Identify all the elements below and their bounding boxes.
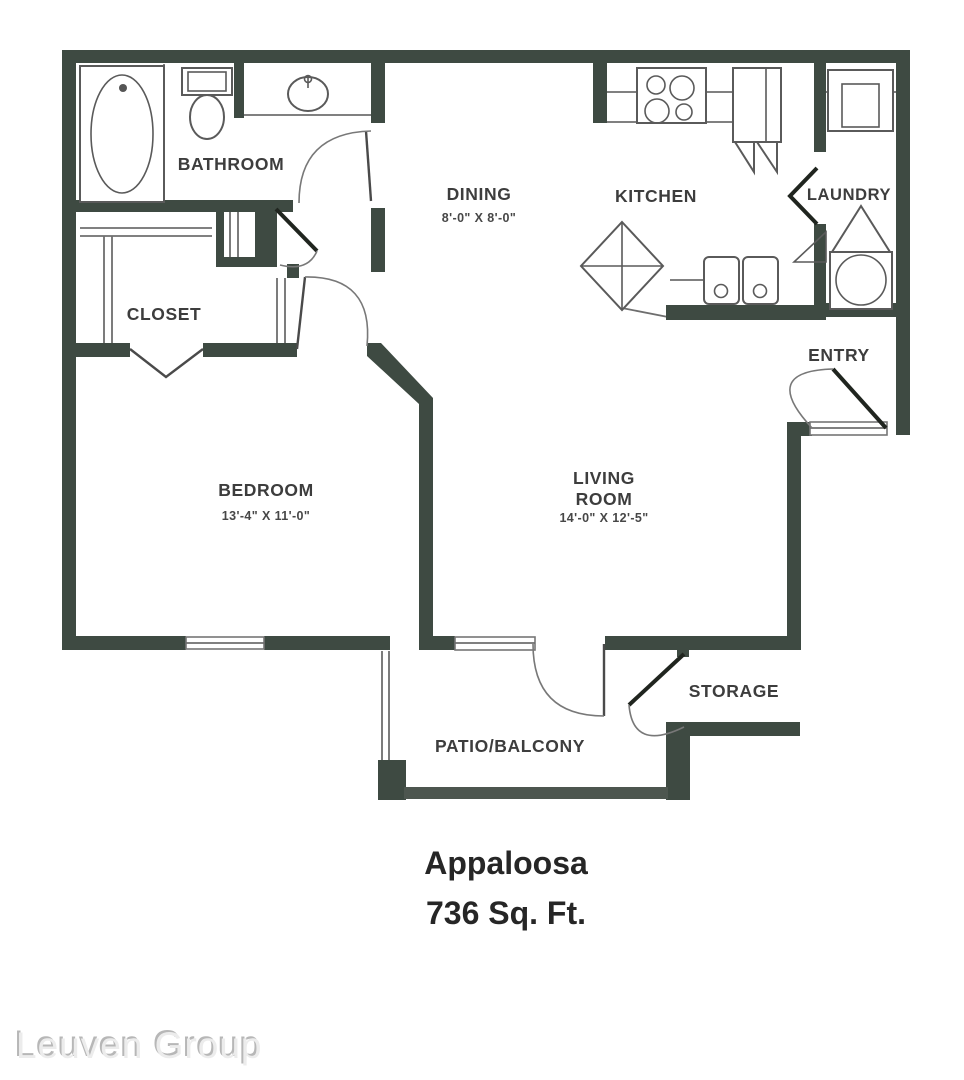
- living-room-label-line2: ROOM: [576, 489, 633, 509]
- bathroom-door: [299, 131, 371, 203]
- dining-dims: 8'-0" X 8'-0": [442, 211, 516, 225]
- living-room-label-line1: LIVING: [573, 468, 635, 488]
- storage-label: STORAGE: [689, 681, 779, 701]
- kitchen-label: KITCHEN: [615, 186, 697, 206]
- washer-fixture: [828, 70, 893, 131]
- bathroom-label: BATHROOM: [178, 154, 285, 174]
- fridge-fixture: [733, 68, 781, 172]
- entry-door: [790, 369, 886, 428]
- kitchen-sink-fixture: [704, 232, 826, 304]
- water-heater-fixture: [830, 206, 892, 309]
- patio-door: [533, 644, 604, 716]
- openings: [186, 422, 887, 650]
- closet-label: CLOSET: [127, 304, 202, 324]
- floor-plan-drawing: BATHROOM CLOSET BEDROOM 13'-4" X 11'-0" …: [0, 0, 964, 1080]
- closet-bifold-door: [130, 349, 203, 377]
- patio-balcony-label: PATIO/BALCONY: [435, 736, 585, 756]
- stove-fixture: [637, 68, 706, 123]
- floor-plan-page: BATHROOM CLOSET BEDROOM 13'-4" X 11'-0" …: [0, 0, 964, 1080]
- bathtub-fixture: [80, 66, 164, 202]
- bedroom-label: BEDROOM: [218, 480, 314, 500]
- bedroom-window: [186, 637, 264, 649]
- entry-door-sill: [810, 422, 887, 435]
- watermark: Leuven Group Leuven Group: [14, 1023, 263, 1066]
- plan-title: Appaloosa: [424, 845, 588, 881]
- kitchen-island-diamond: [581, 222, 663, 310]
- patio-slider-window: [455, 637, 535, 650]
- entry-label: ENTRY: [808, 345, 870, 365]
- watermark-text: Leuven Group: [16, 1025, 263, 1066]
- hall-door: [276, 209, 317, 267]
- dining-label: DINING: [447, 184, 512, 204]
- plan-square-footage: 736 Sq. Ft.: [426, 895, 586, 931]
- bedroom-dims: 13'-4" X 11'-0": [222, 509, 310, 523]
- toilet-fixture: [182, 68, 232, 139]
- laundry-label: LAUNDRY: [807, 186, 891, 204]
- bedroom-door: [297, 277, 368, 349]
- living-room-dims: 14'-0" X 12'-5": [559, 511, 648, 525]
- bathroom-sink-fixture: [234, 63, 328, 118]
